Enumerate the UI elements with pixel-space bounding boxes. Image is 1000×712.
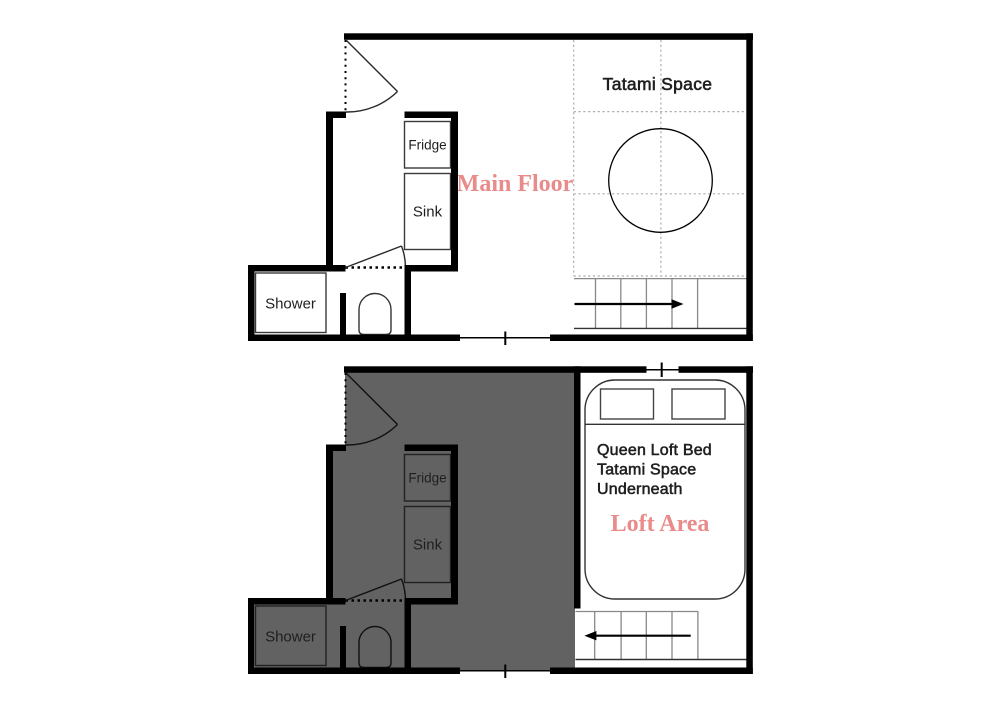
svg-text:Underneath: Underneath (597, 481, 683, 498)
svg-text:Sink: Sink (413, 537, 443, 554)
svg-text:Fridge: Fridge (408, 471, 446, 486)
svg-text:Loft Area: Loft Area (611, 511, 710, 537)
svg-text:Shower: Shower (265, 296, 316, 313)
svg-text:Tatami Space: Tatami Space (603, 74, 713, 94)
svg-text:Fridge: Fridge (408, 138, 446, 153)
svg-text:Main Floor: Main Floor (457, 171, 574, 197)
svg-text:Tatami Space: Tatami Space (597, 461, 696, 478)
svg-text:Shower: Shower (265, 629, 316, 646)
svg-text:Queen Loft Bed: Queen Loft Bed (597, 442, 712, 459)
svg-text:Sink: Sink (413, 204, 443, 221)
